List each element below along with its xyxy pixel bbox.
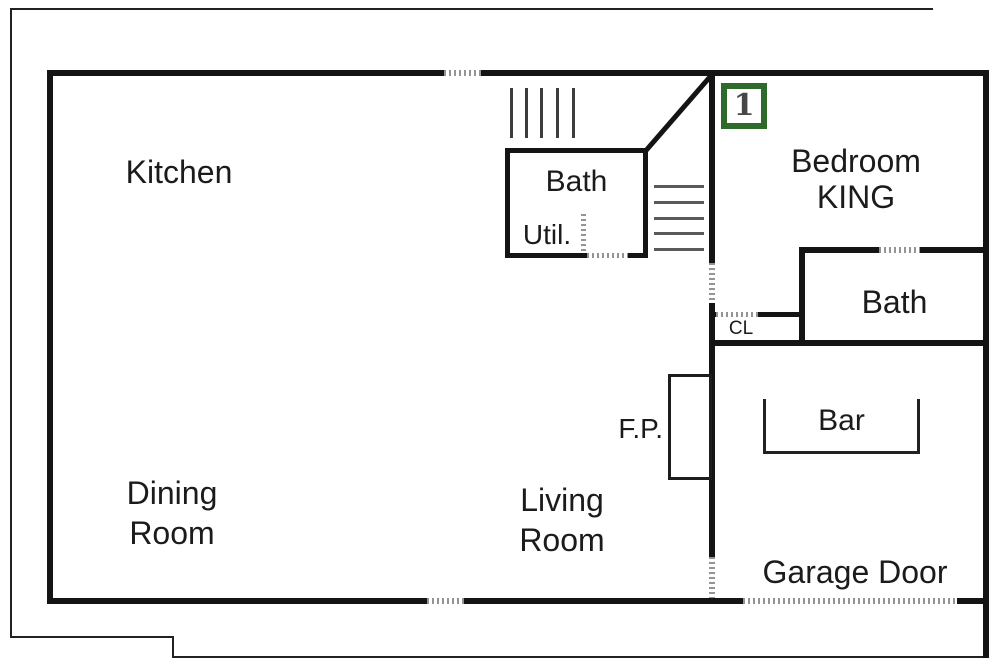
room-label-bar: Bar (763, 405, 920, 437)
wall-garage-separator (709, 340, 989, 346)
wall-exterior-left (47, 70, 53, 604)
room-number-badge: 1 (721, 83, 767, 129)
door-bath-right (879, 247, 920, 253)
dining-label-line2: Room (129, 515, 214, 551)
wall-exterior-top (47, 70, 989, 76)
room-label-bath-middle: Bath (510, 166, 643, 198)
bedroom-label-line1: Bedroom (791, 143, 921, 179)
outer-border-bottom-left (10, 636, 174, 638)
room-label-garage-door: Garage Door (745, 554, 965, 590)
garage-door-opening (743, 598, 957, 604)
room-label-bath-right: Bath (800, 284, 989, 320)
wall-interior-vertical (709, 70, 715, 604)
living-label-line2: Room (519, 522, 604, 558)
floor-plan: 1 Kitchen Bath Util. Bedroom KING Bath C… (0, 0, 1000, 667)
outer-border-step (172, 636, 174, 658)
door-bath-middle (587, 253, 628, 258)
wall-exterior-right (983, 70, 989, 658)
outer-border-top (10, 8, 933, 10)
window-top-wall (444, 70, 481, 76)
room-label-fireplace: F.P. (585, 414, 663, 444)
wall-diagonal (644, 73, 713, 152)
outer-border-left (10, 8, 12, 638)
room-label-util: Util. (508, 220, 586, 250)
bedroom-label-line2: KING (817, 179, 895, 215)
door-bedroom (709, 263, 715, 303)
window-bottom-wall (427, 598, 464, 604)
dining-label-line1: Dining (127, 475, 218, 511)
room-label-closet: CL (719, 319, 763, 339)
room-label-bedroom-king: Bedroom KING (738, 143, 974, 215)
room-label-living-room: Living Room (462, 480, 662, 560)
living-label-line1: Living (520, 482, 604, 518)
room-label-kitchen: Kitchen (79, 154, 279, 190)
outer-border-bottom (172, 656, 989, 658)
door-closet (716, 312, 758, 317)
fireplace-box (668, 374, 712, 480)
room-label-dining-room: Dining Room (72, 473, 272, 553)
door-garage-hall (709, 557, 715, 598)
